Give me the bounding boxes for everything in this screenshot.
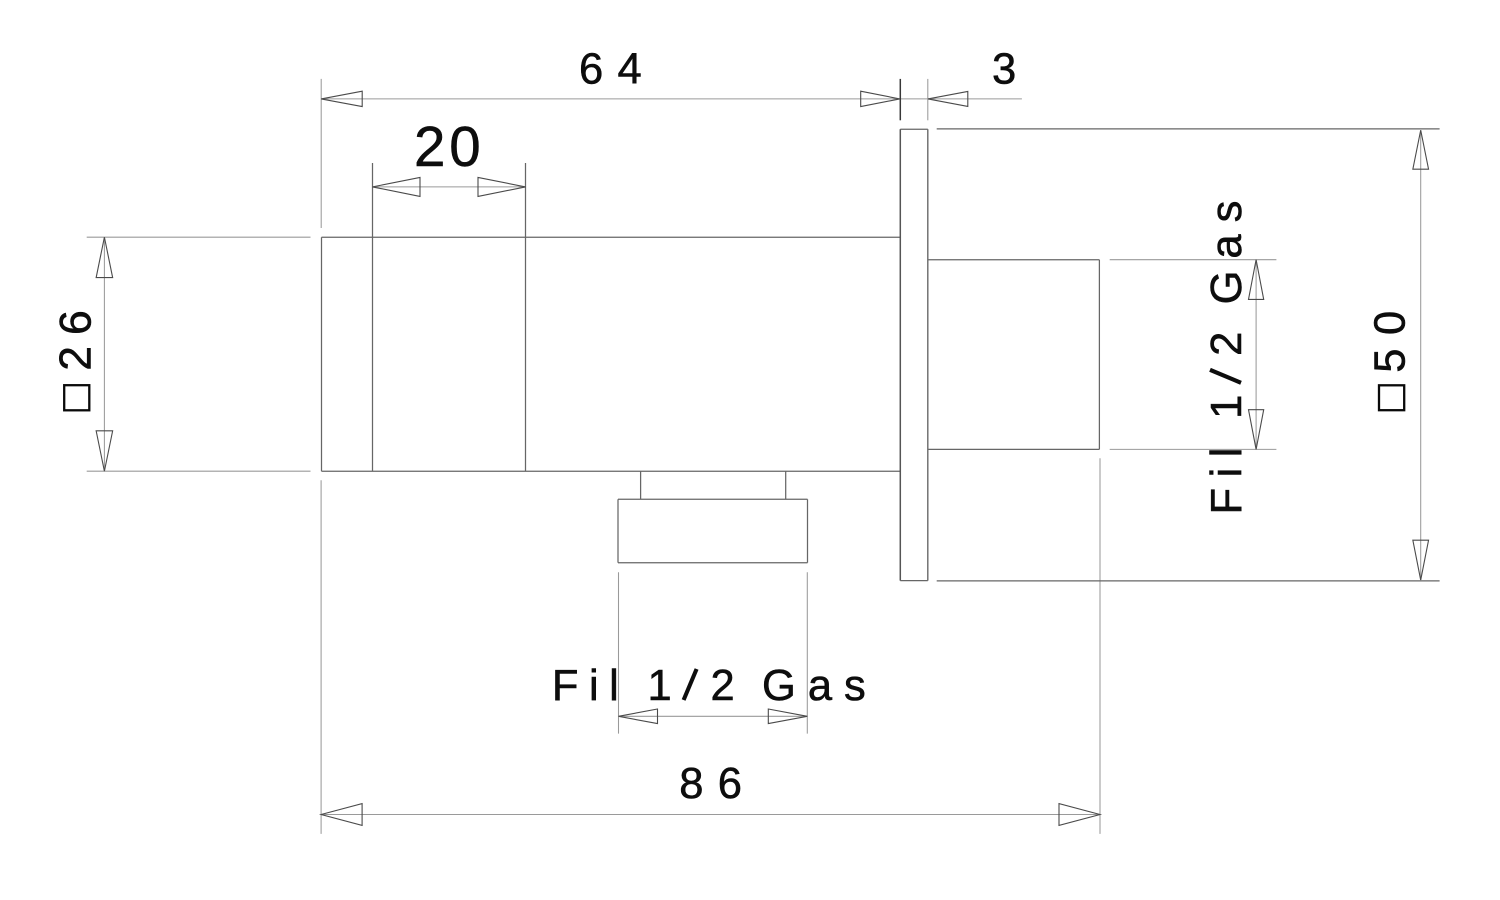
svg-text:1: 1 — [1203, 384, 1251, 419]
svg-text:2: 2 — [711, 662, 746, 710]
svg-text:26: 26 — [51, 299, 100, 371]
svg-text:20: 20 — [414, 115, 484, 178]
svg-text:64: 64 — [579, 45, 656, 93]
svg-text:Gas: Gas — [1203, 189, 1251, 305]
svg-text:50: 50 — [1367, 297, 1415, 372]
svg-text:2: 2 — [1203, 321, 1251, 356]
svg-text:Fil: Fil — [552, 662, 629, 710]
svg-text:Fil: Fil — [1203, 437, 1251, 514]
svg-text:Gas: Gas — [762, 662, 878, 710]
svg-text:3: 3 — [992, 45, 1016, 93]
svg-text:86: 86 — [679, 760, 756, 808]
svg-text:1: 1 — [648, 662, 683, 710]
